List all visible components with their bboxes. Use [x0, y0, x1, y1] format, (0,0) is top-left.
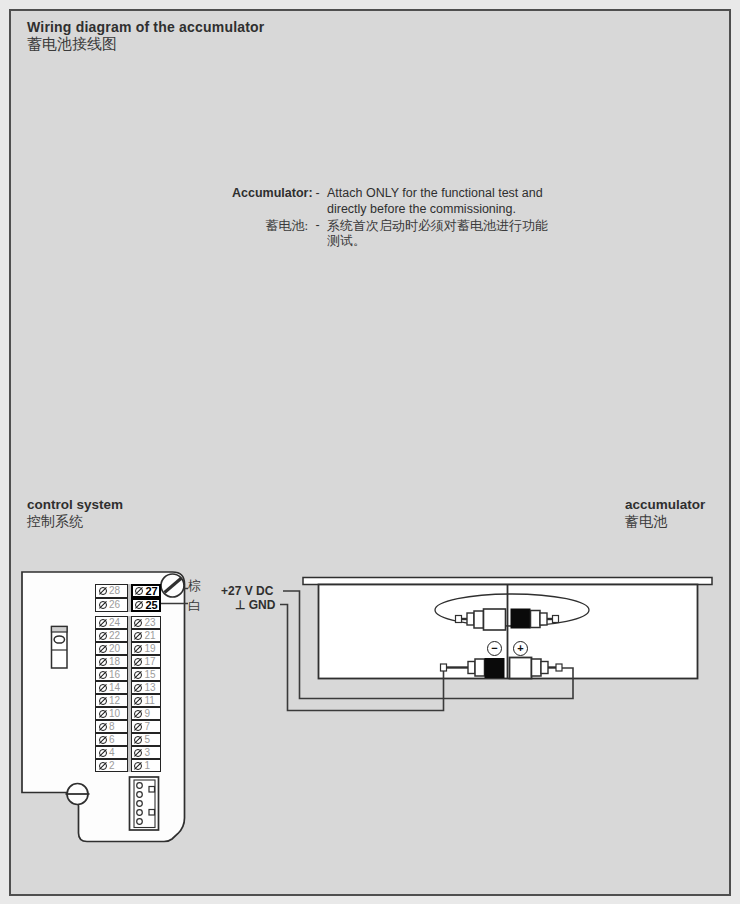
screw-terminal-icon: [134, 762, 142, 770]
terminal-number: 10: [109, 709, 120, 719]
screw-terminal-icon: [99, 645, 107, 653]
screw-terminal-icon: [134, 749, 142, 757]
terminal-cell-24: 24: [95, 616, 128, 629]
accumulator-label: accumulator: [625, 497, 705, 512]
terminal-row: 1817: [95, 655, 161, 668]
pin-connector-block: [130, 777, 159, 830]
terminal-row: 2019: [95, 642, 161, 655]
screw-terminal-icon: [134, 736, 142, 744]
screw-terminal-icon: [99, 632, 107, 640]
terminal-number: 22: [109, 631, 120, 641]
terminal-row: 43: [95, 746, 161, 759]
note-text-en-1: Attach ONLY for the functional test and: [327, 186, 543, 202]
terminal-cell-8: 8: [95, 720, 128, 733]
terminal-number: 23: [145, 618, 156, 628]
screw-terminal-icon: [134, 710, 142, 718]
terminal-row: 2827: [95, 584, 161, 598]
note-line-1: Accumulator: - Attach ONLY for the funct…: [232, 186, 548, 202]
terminal-number: 15: [145, 670, 156, 680]
terminal-number: 14: [109, 683, 120, 693]
terminal-number: 13: [145, 683, 156, 693]
accumulator-note: Accumulator: - Attach ONLY for the funct…: [232, 186, 548, 249]
terminal-cell-19: 19: [131, 642, 161, 655]
terminal-row: 2423: [95, 616, 161, 629]
screw-terminal-icon: [134, 697, 142, 705]
terminal-row: 65: [95, 733, 161, 746]
minus-polarity-badge: −: [487, 641, 502, 656]
terminal-number: 16: [109, 670, 120, 680]
screw-terminal-icon: [99, 710, 107, 718]
supply-voltage-label: +27 V DC: [221, 584, 273, 598]
screw-terminal-icon: [99, 697, 107, 705]
terminal-cell-18: 18: [95, 655, 128, 668]
mounting-screw-bottom-icon: [66, 784, 90, 805]
terminal-row: 109: [95, 707, 161, 720]
terminal-cell-2: 2: [95, 759, 128, 772]
plus-polarity-badge: +: [513, 641, 528, 656]
terminal-number: 11: [145, 696, 155, 706]
terminal-number: 8: [109, 722, 115, 732]
control-system-label-zh: 控制系统: [27, 513, 83, 531]
screw-terminal-icon: [99, 736, 107, 744]
terminal-cell-26: 26: [95, 598, 128, 612]
terminal-number: 18: [109, 657, 120, 667]
screw-terminal-icon: [99, 601, 107, 609]
screw-terminal-icon: [99, 684, 107, 692]
terminal-number: 3: [145, 748, 151, 758]
terminal-number: 28: [109, 586, 120, 596]
terminal-number: 21: [145, 631, 156, 641]
accumulator-lid: [303, 578, 712, 585]
terminal-row: 1211: [95, 694, 161, 707]
note-label-zh: 蓄电池:: [232, 218, 308, 234]
note-text-zh-1: 系统首次启动时必须对蓄电池进行功能: [327, 218, 548, 234]
page-title-zh: 蓄电池接线图: [27, 35, 117, 54]
terminal-row: 21: [95, 759, 161, 772]
screw-terminal-icon: [135, 601, 143, 609]
screw-terminal-icon: [134, 658, 142, 666]
screw-terminal-icon: [134, 671, 142, 679]
terminal-row: 87: [95, 720, 161, 733]
control-system-label: control system: [27, 497, 123, 512]
page-title: Wiring diagram of the accumulator: [27, 19, 265, 35]
terminal-cell-16: 16: [95, 668, 128, 681]
jumper-component: [52, 627, 68, 669]
terminal-cell-27: 27: [131, 584, 161, 598]
terminal-cell-1: 1: [131, 759, 161, 772]
screw-terminal-icon: [99, 671, 107, 679]
screw-terminal-icon: [99, 762, 107, 770]
terminal-number: 9: [145, 709, 151, 719]
terminal-cell-17: 17: [131, 655, 161, 668]
terminal-cell-10: 10: [95, 707, 128, 720]
terminal-cell-20: 20: [95, 642, 128, 655]
screw-terminal-icon: [99, 658, 107, 666]
note-label-en: Accumulator:: [232, 186, 308, 202]
terminal-cell-4: 4: [95, 746, 128, 759]
note-dash-2: -: [308, 218, 327, 234]
screw-terminal-icon: [99, 587, 107, 595]
terminal-row: 2625: [95, 598, 161, 612]
terminal-number: 7: [145, 722, 151, 732]
screw-terminal-icon: [135, 587, 143, 595]
terminal-cell-3: 3: [131, 746, 161, 759]
terminal-cell-28: 28: [95, 584, 128, 598]
terminal-number: 25: [146, 600, 158, 611]
note-text-zh-2: 测试。: [327, 233, 366, 249]
terminal-row: 1615: [95, 668, 161, 681]
mounting-screw-top-icon: [161, 574, 184, 597]
terminal-cell-12: 12: [95, 694, 128, 707]
terminal-number: 4: [109, 748, 115, 758]
terminal-cell-9: 9: [131, 707, 161, 720]
terminal-cell-21: 21: [131, 629, 161, 642]
terminal-cell-25: 25: [131, 598, 161, 612]
terminal-cell-15: 15: [131, 668, 161, 681]
terminal-cell-23: 23: [131, 616, 161, 629]
note-dash: -: [308, 186, 327, 202]
accumulator-box: [319, 585, 698, 679]
terminal-cell-6: 6: [95, 733, 128, 746]
terminal-block: 2827262524232221201918171615141312111098…: [95, 584, 161, 772]
accumulator-label-zh: 蓄电池: [625, 513, 667, 531]
note-line-3: 蓄电池: - 系统首次启动时必须对蓄电池进行功能: [232, 218, 548, 234]
note-line-4: 测试。: [232, 233, 548, 249]
screw-terminal-icon: [134, 684, 142, 692]
screw-terminal-icon: [99, 723, 107, 731]
note-text-en-2: directly before the commissioning.: [327, 202, 516, 218]
terminal-number: 17: [145, 657, 156, 667]
terminal-number: 12: [109, 696, 120, 706]
screw-terminal-icon: [99, 749, 107, 757]
terminal-cell-14: 14: [95, 681, 128, 694]
terminal-cell-11: 11: [131, 694, 161, 707]
terminal-cell-5: 5: [131, 733, 161, 746]
terminal-number: 24: [109, 618, 120, 628]
terminal-cell-13: 13: [131, 681, 161, 694]
terminal-number: 20: [109, 644, 120, 654]
terminal-number: 5: [145, 735, 151, 745]
screw-terminal-icon: [134, 619, 142, 627]
document-page: Wiring diagram of the accumulator 蓄电池接线图…: [0, 0, 740, 904]
terminal-number: 1: [145, 761, 151, 771]
screw-terminal-icon: [134, 645, 142, 653]
terminal-number: 26: [109, 600, 120, 610]
terminal-cell-22: 22: [95, 629, 128, 642]
terminal-row: 1413: [95, 681, 161, 694]
terminal-cell-7: 7: [131, 720, 161, 733]
terminal-row: 2221: [95, 629, 161, 642]
terminal-number: 2: [109, 761, 115, 771]
screw-terminal-icon: [134, 632, 142, 640]
ground-label: ⊥ GND: [235, 598, 275, 612]
screw-terminal-icon: [134, 723, 142, 731]
terminal-number: 27: [146, 586, 158, 597]
note-line-2: directly before the commissioning.: [232, 202, 548, 218]
terminal-number: 19: [145, 644, 156, 654]
wire-color-brown-label: 棕: [188, 577, 201, 595]
screw-terminal-icon: [99, 619, 107, 627]
wire-color-white-label: 白: [188, 597, 201, 615]
terminal-number: 6: [109, 735, 115, 745]
